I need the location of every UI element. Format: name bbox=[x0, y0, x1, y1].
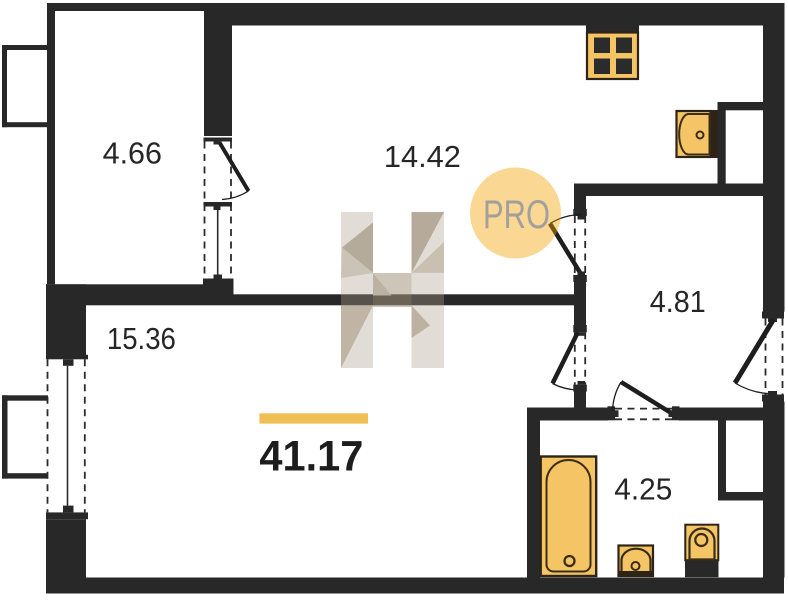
svg-text:4.66: 4.66 bbox=[103, 135, 162, 170]
svg-text:PRO: PRO bbox=[483, 193, 550, 237]
svg-text:14.42: 14.42 bbox=[384, 139, 461, 174]
svg-text:4.25: 4.25 bbox=[614, 471, 672, 506]
svg-text:41.17: 41.17 bbox=[259, 432, 363, 480]
svg-text:4.81: 4.81 bbox=[650, 284, 706, 319]
svg-text:15.36: 15.36 bbox=[107, 321, 176, 356]
